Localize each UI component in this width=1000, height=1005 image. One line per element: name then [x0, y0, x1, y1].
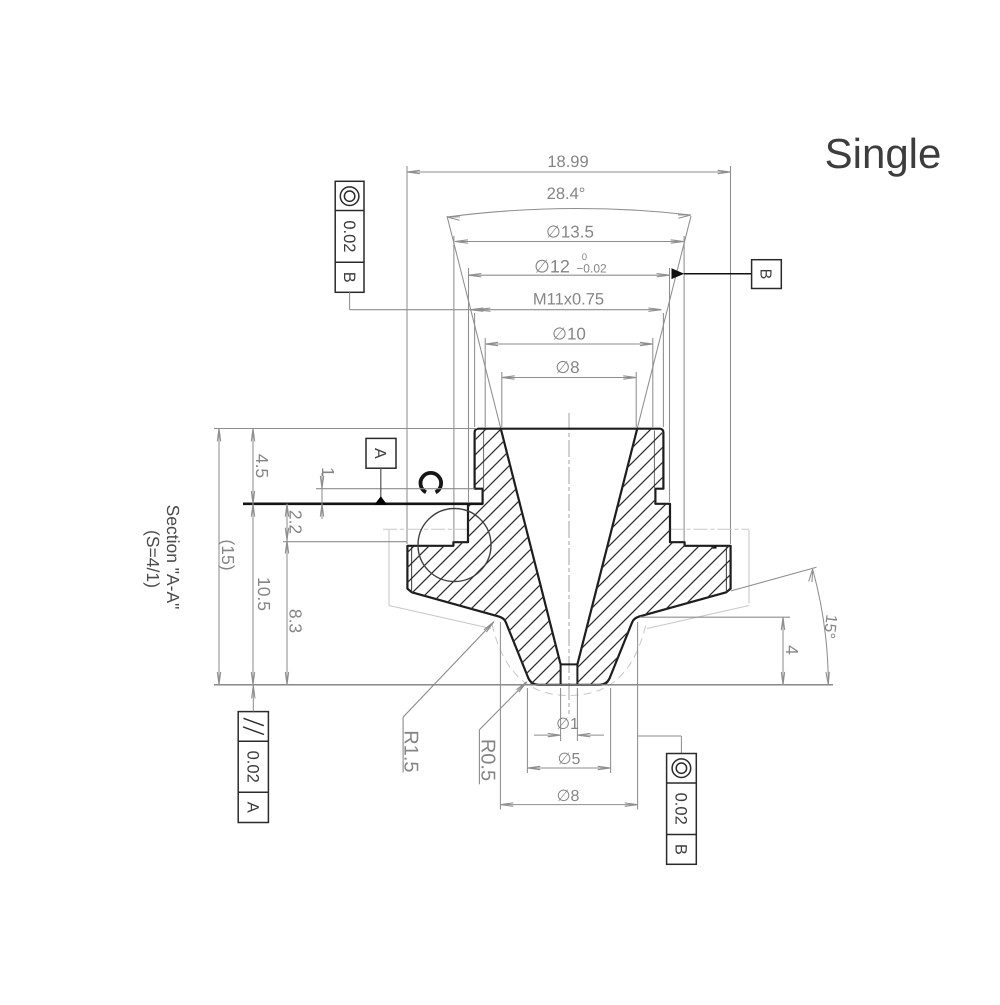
svg-text:28.4°: 28.4° — [547, 185, 586, 203]
svg-text:4.5: 4.5 — [252, 454, 272, 478]
svg-text:Single: Single — [825, 130, 942, 177]
svg-text:A: A — [371, 448, 388, 459]
svg-text:B: B — [672, 844, 690, 855]
svg-text:(15): (15) — [218, 539, 238, 570]
svg-text:15°: 15° — [820, 614, 840, 640]
svg-text:∅12: ∅12 — [534, 257, 570, 277]
svg-text:Section "A-A": Section "A-A" — [163, 505, 183, 610]
svg-text:R0.5: R0.5 — [476, 739, 498, 781]
svg-text:8.3: 8.3 — [286, 609, 306, 633]
svg-text:18.99: 18.99 — [547, 153, 588, 171]
svg-text:−0.02: −0.02 — [576, 261, 607, 275]
svg-text:∅8: ∅8 — [557, 788, 580, 805]
svg-text:∅5: ∅5 — [558, 751, 581, 768]
svg-text:∅10: ∅10 — [552, 325, 586, 344]
svg-text:(S=4/1): (S=4/1) — [143, 530, 163, 588]
svg-text:B: B — [340, 272, 358, 283]
svg-text:R1.5: R1.5 — [399, 730, 421, 772]
svg-text:∅1: ∅1 — [556, 716, 579, 733]
svg-text:∅8: ∅8 — [555, 358, 579, 377]
svg-text:10.5: 10.5 — [254, 577, 274, 611]
svg-text:0.02: 0.02 — [243, 751, 261, 783]
svg-text:1: 1 — [318, 467, 338, 477]
svg-text:0.02: 0.02 — [340, 220, 358, 252]
svg-text:M11x0.75: M11x0.75 — [533, 291, 604, 309]
svg-text:B: B — [757, 269, 774, 280]
svg-text:A: A — [243, 802, 261, 813]
svg-text:2.2: 2.2 — [286, 510, 306, 534]
svg-text:∅13.5: ∅13.5 — [546, 223, 594, 242]
svg-text:4: 4 — [782, 645, 802, 655]
svg-text:0.02: 0.02 — [672, 793, 690, 825]
